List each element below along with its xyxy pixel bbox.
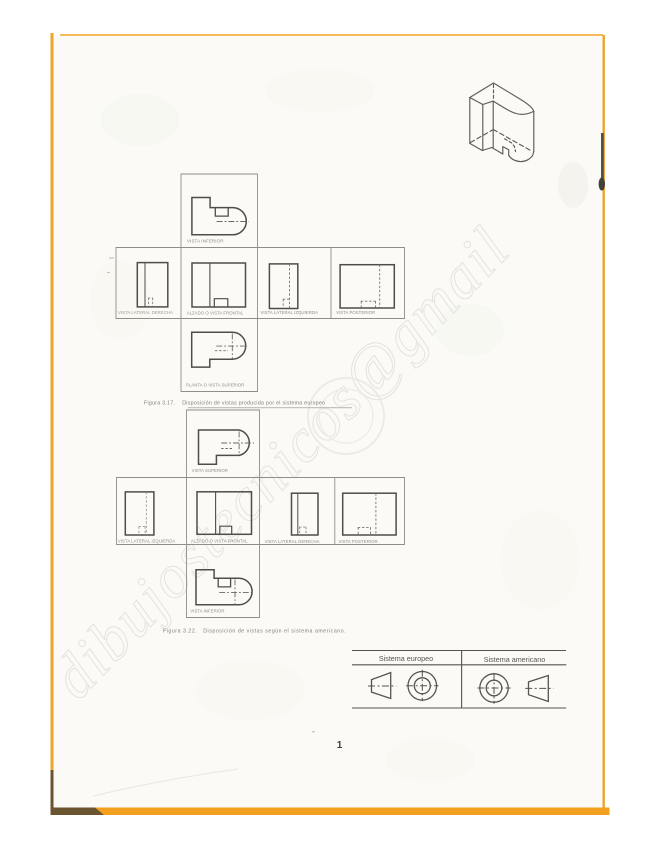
svg-text:1: 1 bbox=[337, 740, 343, 751]
svg-text:VISTA POSTERIOR: VISTA POSTERIOR bbox=[336, 310, 375, 315]
svg-text:VISTA INFERIOR: VISTA INFERIOR bbox=[187, 239, 224, 244]
svg-text:ALZADO O VISTA FRONTAL: ALZADO O VISTA FRONTAL bbox=[187, 311, 244, 316]
svg-text:VISTA SUPERIOR: VISTA SUPERIOR bbox=[192, 468, 228, 473]
svg-text:VISTA LATERAL DERECHA: VISTA LATERAL DERECHA bbox=[265, 539, 320, 544]
svg-text:Figura 3.22. Disposición de: Figura 3.22. Disposición de vistas según… bbox=[163, 629, 346, 635]
svg-text:VISTA LATERAL IZQUIERDA: VISTA LATERAL IZQUIERDA bbox=[261, 310, 319, 315]
svg-text:VISTA LATERAL DERECHA: VISTA LATERAL DERECHA bbox=[118, 310, 173, 315]
svg-text:PLANTA O VISTA SUPERIOR: PLANTA O VISTA SUPERIOR bbox=[186, 383, 245, 388]
svg-text:Figura 3.17. Disposición de: Figura 3.17. Disposición de vistas produ… bbox=[144, 401, 325, 407]
svg-text:VISTA LATERAL IZQUIERDA: VISTA LATERAL IZQUIERDA bbox=[118, 539, 176, 544]
svg-text:Sistema europeo: Sistema europeo bbox=[379, 654, 433, 663]
svg-text:ALZADO O VISTA FRONTAL: ALZADO O VISTA FRONTAL bbox=[191, 539, 248, 544]
svg-text:VISTA POSTERIOR: VISTA POSTERIOR bbox=[339, 539, 378, 544]
svg-text:Sistema americano: Sistema americano bbox=[484, 655, 546, 664]
svg-text:VISTA INFERIOR: VISTA INFERIOR bbox=[190, 609, 224, 614]
